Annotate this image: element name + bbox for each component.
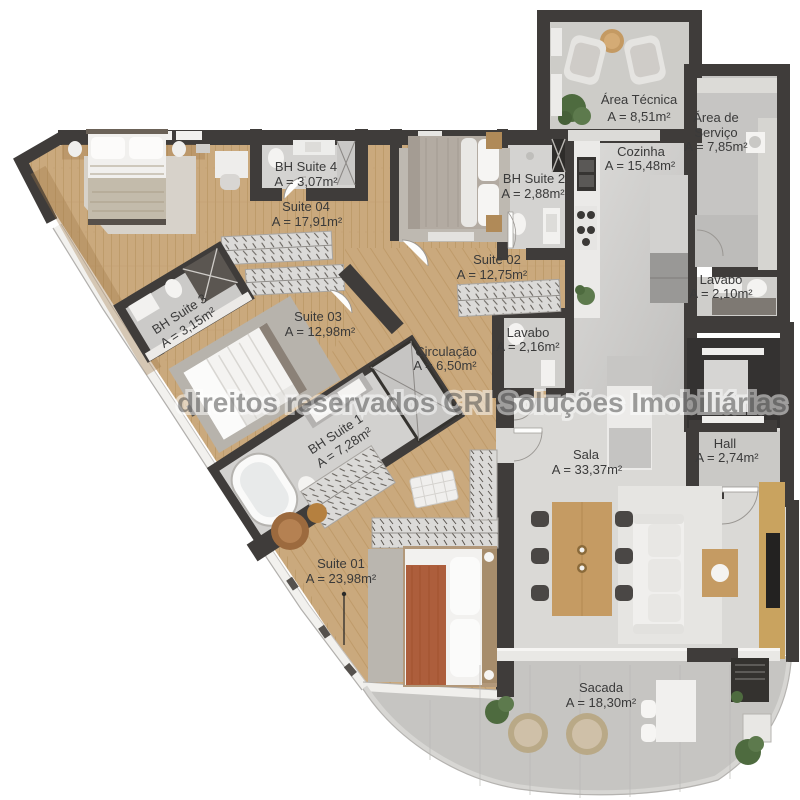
- svg-text:direitos reservados CRI Soluçõ: direitos reservados CRI Soluções Imobili…: [177, 387, 787, 418]
- svg-text:Sala: Sala: [573, 447, 600, 462]
- svg-text:A = 17,91m²: A = 17,91m²: [272, 214, 343, 229]
- svg-text:A = 8,51m²: A = 8,51m²: [607, 109, 671, 124]
- svg-text:A = 33,37m²: A = 33,37m²: [552, 462, 623, 477]
- svg-text:Suite 04: Suite 04: [282, 199, 330, 214]
- svg-text:Suite 01: Suite 01: [317, 556, 365, 571]
- svg-text:Hall: Hall: [714, 436, 737, 451]
- svg-text:Lavabo: Lavabo: [700, 272, 743, 287]
- svg-text:A = 2,10m²: A = 2,10m²: [689, 286, 753, 301]
- svg-text:Cozinha: Cozinha: [617, 144, 665, 159]
- svg-text:Lavabo: Lavabo: [507, 325, 550, 340]
- svg-text:Serviço: Serviço: [694, 125, 737, 140]
- svg-text:Área de: Área de: [693, 110, 739, 125]
- svg-text:A = 23,98m²: A = 23,98m²: [306, 571, 377, 586]
- svg-text:Área Técnica: Área Técnica: [601, 92, 678, 107]
- svg-text:A = 15,48m²: A = 15,48m²: [605, 158, 676, 173]
- svg-text:A = 12,75m²: A = 12,75m²: [457, 267, 528, 282]
- svg-text:A = 18,30m²: A = 18,30m²: [566, 695, 637, 710]
- svg-text:BH Suite 2: BH Suite 2: [503, 171, 565, 186]
- svg-text:BH Suite 4: BH Suite 4: [275, 159, 337, 174]
- svg-text:Suite 02: Suite 02: [473, 252, 521, 267]
- svg-text:Suite 03: Suite 03: [294, 309, 342, 324]
- svg-text:Sacada: Sacada: [579, 680, 624, 695]
- svg-text:A = 3,07m²: A = 3,07m²: [274, 174, 338, 189]
- svg-text:A = 6,50m²: A = 6,50m²: [413, 358, 477, 373]
- svg-text:A = 12,98m²: A = 12,98m²: [285, 324, 356, 339]
- svg-text:Circulação: Circulação: [415, 344, 476, 359]
- svg-text:A = 2,74m²: A = 2,74m²: [695, 450, 759, 465]
- svg-text:A = 7,85m²: A = 7,85m²: [684, 139, 748, 154]
- svg-text:A = 2,88m²: A = 2,88m²: [501, 186, 565, 201]
- svg-text:A = 2,16m²: A = 2,16m²: [496, 339, 560, 354]
